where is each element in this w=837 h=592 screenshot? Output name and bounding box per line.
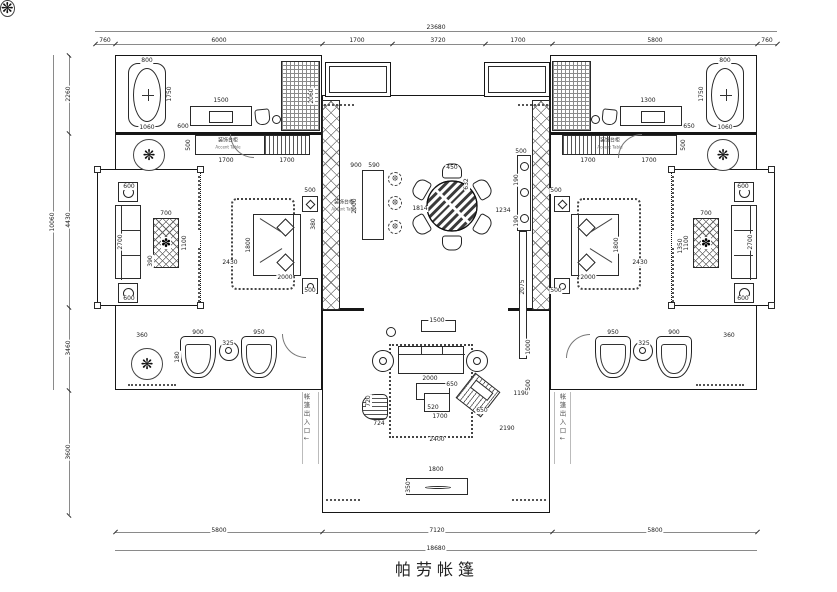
sofa-cushion-divider — [421, 347, 422, 354]
sofa-back-line — [121, 206, 122, 280]
terrace-post — [768, 302, 775, 309]
right-vanity — [620, 106, 682, 126]
dim-line-top-total — [95, 31, 777, 32]
dim-label: 5800 — [646, 528, 663, 534]
table-lamp — [379, 357, 387, 365]
steps — [326, 499, 360, 501]
terrace-post — [197, 166, 204, 173]
left-vanity-sink — [209, 111, 233, 123]
bed-pillow — [276, 218, 294, 236]
dim-label: 18680 — [425, 546, 446, 552]
plant-icon: ❋ — [143, 148, 156, 163]
right-shower — [552, 61, 591, 131]
dim-label: 5800 — [210, 528, 227, 534]
bed-pillow — [577, 218, 595, 236]
sofa-back-line — [750, 206, 751, 280]
sofa-cushion-divider — [442, 347, 443, 354]
right-terrace — [671, 169, 775, 306]
hall-console — [517, 155, 531, 231]
path-line — [554, 392, 555, 464]
floorplan-canvas: ❋ ❋ ❋ ❋ ✽ ❊ ❊ ❊ — [0, 0, 837, 592]
plant-icon: ❋ — [717, 148, 730, 163]
dining-table — [424, 178, 480, 234]
entry-steps — [518, 104, 548, 106]
chair-cushion — [661, 344, 687, 374]
right-terrace-sofa — [731, 205, 757, 279]
right-nightstand — [554, 278, 570, 294]
left-shower — [281, 61, 320, 131]
tub-cross — [726, 89, 727, 101]
left-vanity — [190, 106, 252, 126]
left-porch — [325, 62, 391, 97]
table-flower-icon: ✽ — [701, 237, 711, 249]
tub-cross — [148, 89, 149, 101]
chair-cushion — [246, 344, 272, 374]
plant-icon: ❊ — [392, 175, 399, 183]
console-dish — [520, 214, 529, 223]
nightstand-decor — [306, 200, 316, 210]
left-terrace-sofa — [115, 205, 141, 279]
side-table-lamp — [123, 288, 134, 299]
plant: ❋ — [133, 139, 165, 171]
console-dish — [520, 162, 529, 171]
right-nightstand — [554, 196, 570, 212]
left-terrace-side-table — [118, 182, 138, 202]
left-nightstand — [302, 278, 318, 294]
steps — [128, 384, 176, 386]
right-accent-cabinet-shelf — [563, 136, 610, 154]
round-side-table — [372, 350, 394, 372]
right-vanity-sink — [641, 111, 665, 123]
sofa-seat-divider — [734, 255, 753, 256]
central-block — [322, 95, 550, 513]
plant-icon: ❋ — [1, 1, 14, 16]
plant: ❋ — [707, 139, 739, 171]
lounge-round-table — [219, 341, 239, 361]
dim-tick — [775, 42, 780, 47]
sofa-seat-divider — [121, 255, 140, 256]
sofa-console — [421, 320, 456, 332]
dim-line-bottom-segments — [115, 532, 757, 533]
dim-line-bottom-total — [115, 550, 757, 551]
terrace-post — [197, 302, 204, 309]
dining-chair — [442, 236, 462, 251]
bed-headboard-line — [293, 215, 294, 277]
side-table-lamp — [739, 187, 750, 198]
chair-cushion — [600, 344, 626, 374]
tv-cabinet-handle — [425, 486, 451, 489]
terrace-post — [668, 166, 675, 173]
left-terrace — [97, 169, 201, 306]
entrance-label: 帐篷出入口↓ — [557, 393, 567, 443]
left-bathtub — [128, 63, 166, 127]
right-bed — [571, 214, 619, 276]
entry-steps — [324, 104, 354, 106]
dim-tick — [755, 530, 760, 535]
sofa-seat-divider — [121, 230, 140, 231]
left-accent-cabinet-shelf — [264, 136, 309, 154]
left-porch-inner — [329, 66, 387, 93]
dim-line-left-total — [53, 55, 54, 390]
terrace-screen — [672, 248, 674, 302]
left-nightstand — [302, 196, 318, 212]
dim-label: 7120 — [428, 528, 445, 534]
tv-cabinet — [406, 478, 468, 495]
right-bath-drain — [591, 115, 600, 124]
nightstand-decor — [558, 200, 568, 210]
terrace-post — [768, 166, 775, 173]
terrace-post — [668, 302, 675, 309]
console-dish — [520, 188, 529, 197]
round-side-table — [466, 350, 488, 372]
dim-line-top-segments — [95, 44, 777, 45]
table-flower-icon: ✽ — [161, 237, 171, 249]
chair-cushion — [185, 344, 211, 374]
dining-chair — [442, 164, 462, 179]
right-terrace-side-table — [734, 182, 754, 202]
table-lamp — [473, 357, 481, 365]
terrace-post — [94, 166, 101, 173]
plant-icon: ❊ — [392, 199, 399, 207]
plant-icon: ❋ — [141, 357, 154, 372]
path-line — [318, 392, 319, 464]
steps — [512, 499, 546, 501]
chaise-bench — [362, 394, 388, 420]
left-bed — [253, 214, 301, 276]
right-terrace-side-table — [734, 283, 754, 303]
left-bath-drain — [272, 115, 281, 124]
right-terrace-table: ✽ — [693, 218, 719, 268]
side-table-lamp — [739, 288, 750, 299]
path-line — [302, 392, 303, 464]
right-wardrobe — [532, 100, 550, 310]
terrace-screen — [672, 176, 674, 230]
nightstand-lamp — [559, 283, 566, 290]
nightstand-lamp — [307, 283, 314, 290]
bed-pillow — [276, 253, 294, 271]
left-wardrobe — [322, 100, 340, 310]
terrace-post — [94, 302, 101, 309]
living-sofa — [398, 346, 464, 374]
right-porch — [484, 62, 550, 97]
bar-console — [362, 170, 384, 240]
side-table-lamp — [123, 187, 134, 198]
console-plant: ❊ — [388, 196, 402, 210]
left-terrace-table: ✽ — [153, 218, 179, 268]
dim-line-left-segments — [69, 55, 70, 515]
table-center — [225, 347, 232, 354]
plant: ❋ — [0, 0, 15, 17]
coffee-table-lower — [424, 393, 450, 412]
console-plant: ❊ — [388, 172, 402, 186]
table-center — [639, 347, 646, 354]
right-bathtub — [706, 63, 744, 127]
left-terrace-side-table — [118, 283, 138, 303]
plant-icon: ❊ — [392, 223, 399, 231]
steps — [696, 384, 744, 386]
floor-lamp-small — [386, 327, 396, 337]
hall-partition — [519, 231, 527, 359]
terrace-screen — [198, 176, 200, 230]
right-porch-inner — [488, 66, 546, 93]
lounge-round-table — [633, 341, 653, 361]
path-line — [570, 392, 571, 464]
console-plant: ❊ — [388, 220, 402, 234]
drawing-title: 帕劳帐篷 — [395, 556, 479, 580]
sofa-seat-divider — [734, 230, 753, 231]
sofa-back-line — [399, 354, 465, 355]
terrace-screen — [198, 248, 200, 302]
bed-pillow — [577, 253, 595, 271]
plant: ❋ — [131, 348, 163, 380]
